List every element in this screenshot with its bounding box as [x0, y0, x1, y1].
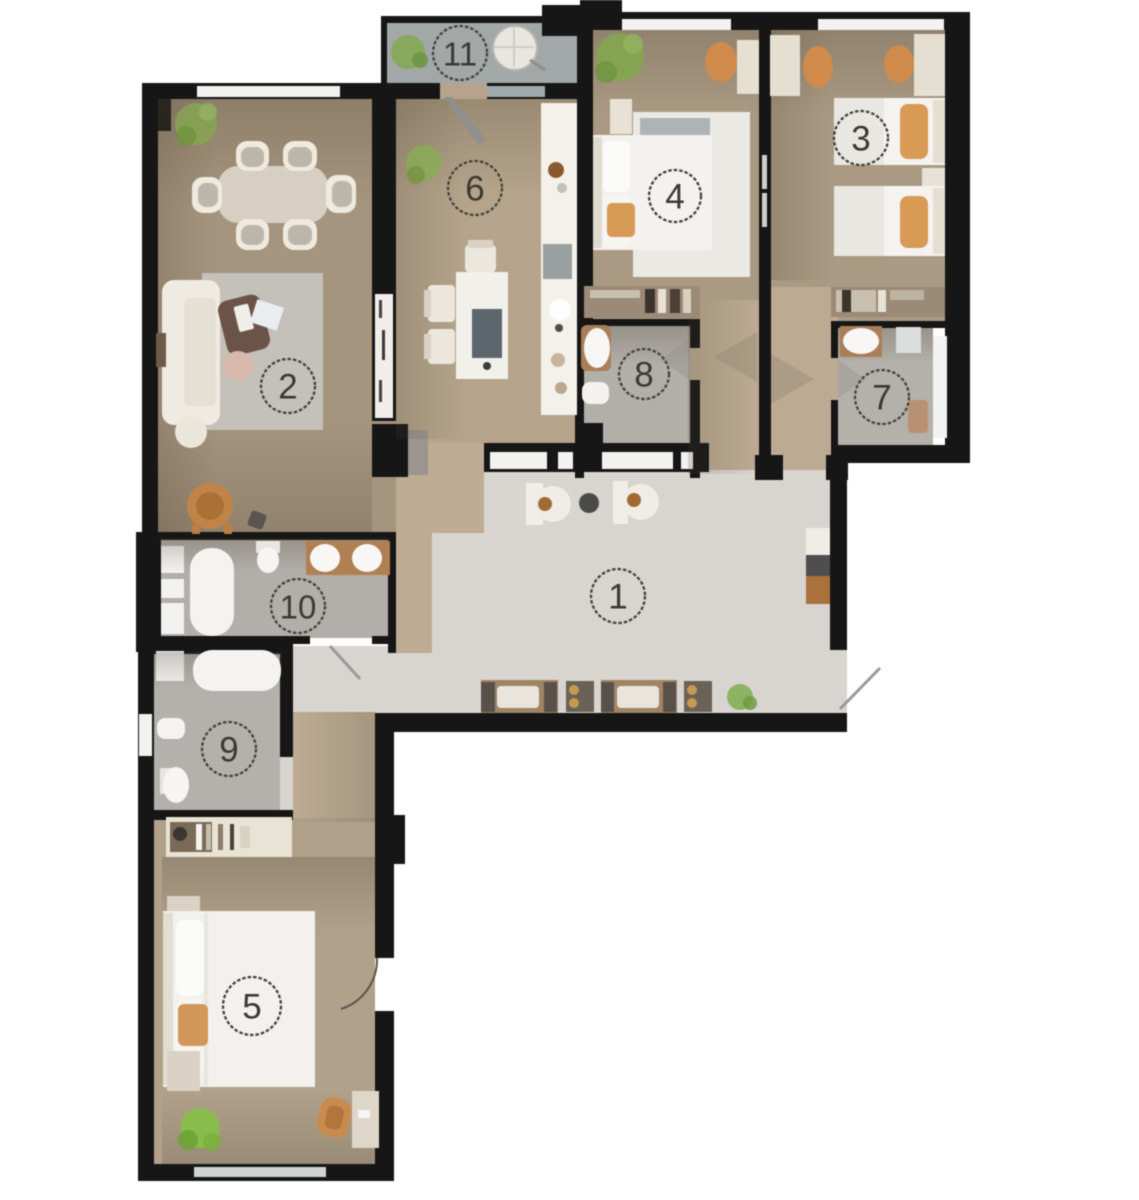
svg-text:10: 10 — [280, 589, 317, 626]
svg-text:2: 2 — [278, 368, 297, 407]
svg-text:7: 7 — [872, 379, 891, 418]
svg-text:6: 6 — [465, 170, 484, 209]
svg-text:3: 3 — [851, 120, 870, 159]
svg-text:11: 11 — [443, 36, 477, 73]
svg-text:9: 9 — [219, 731, 238, 770]
svg-text:4: 4 — [665, 178, 684, 217]
svg-text:5: 5 — [242, 988, 261, 1027]
svg-text:8: 8 — [634, 356, 653, 395]
svg-text:1: 1 — [608, 578, 627, 617]
